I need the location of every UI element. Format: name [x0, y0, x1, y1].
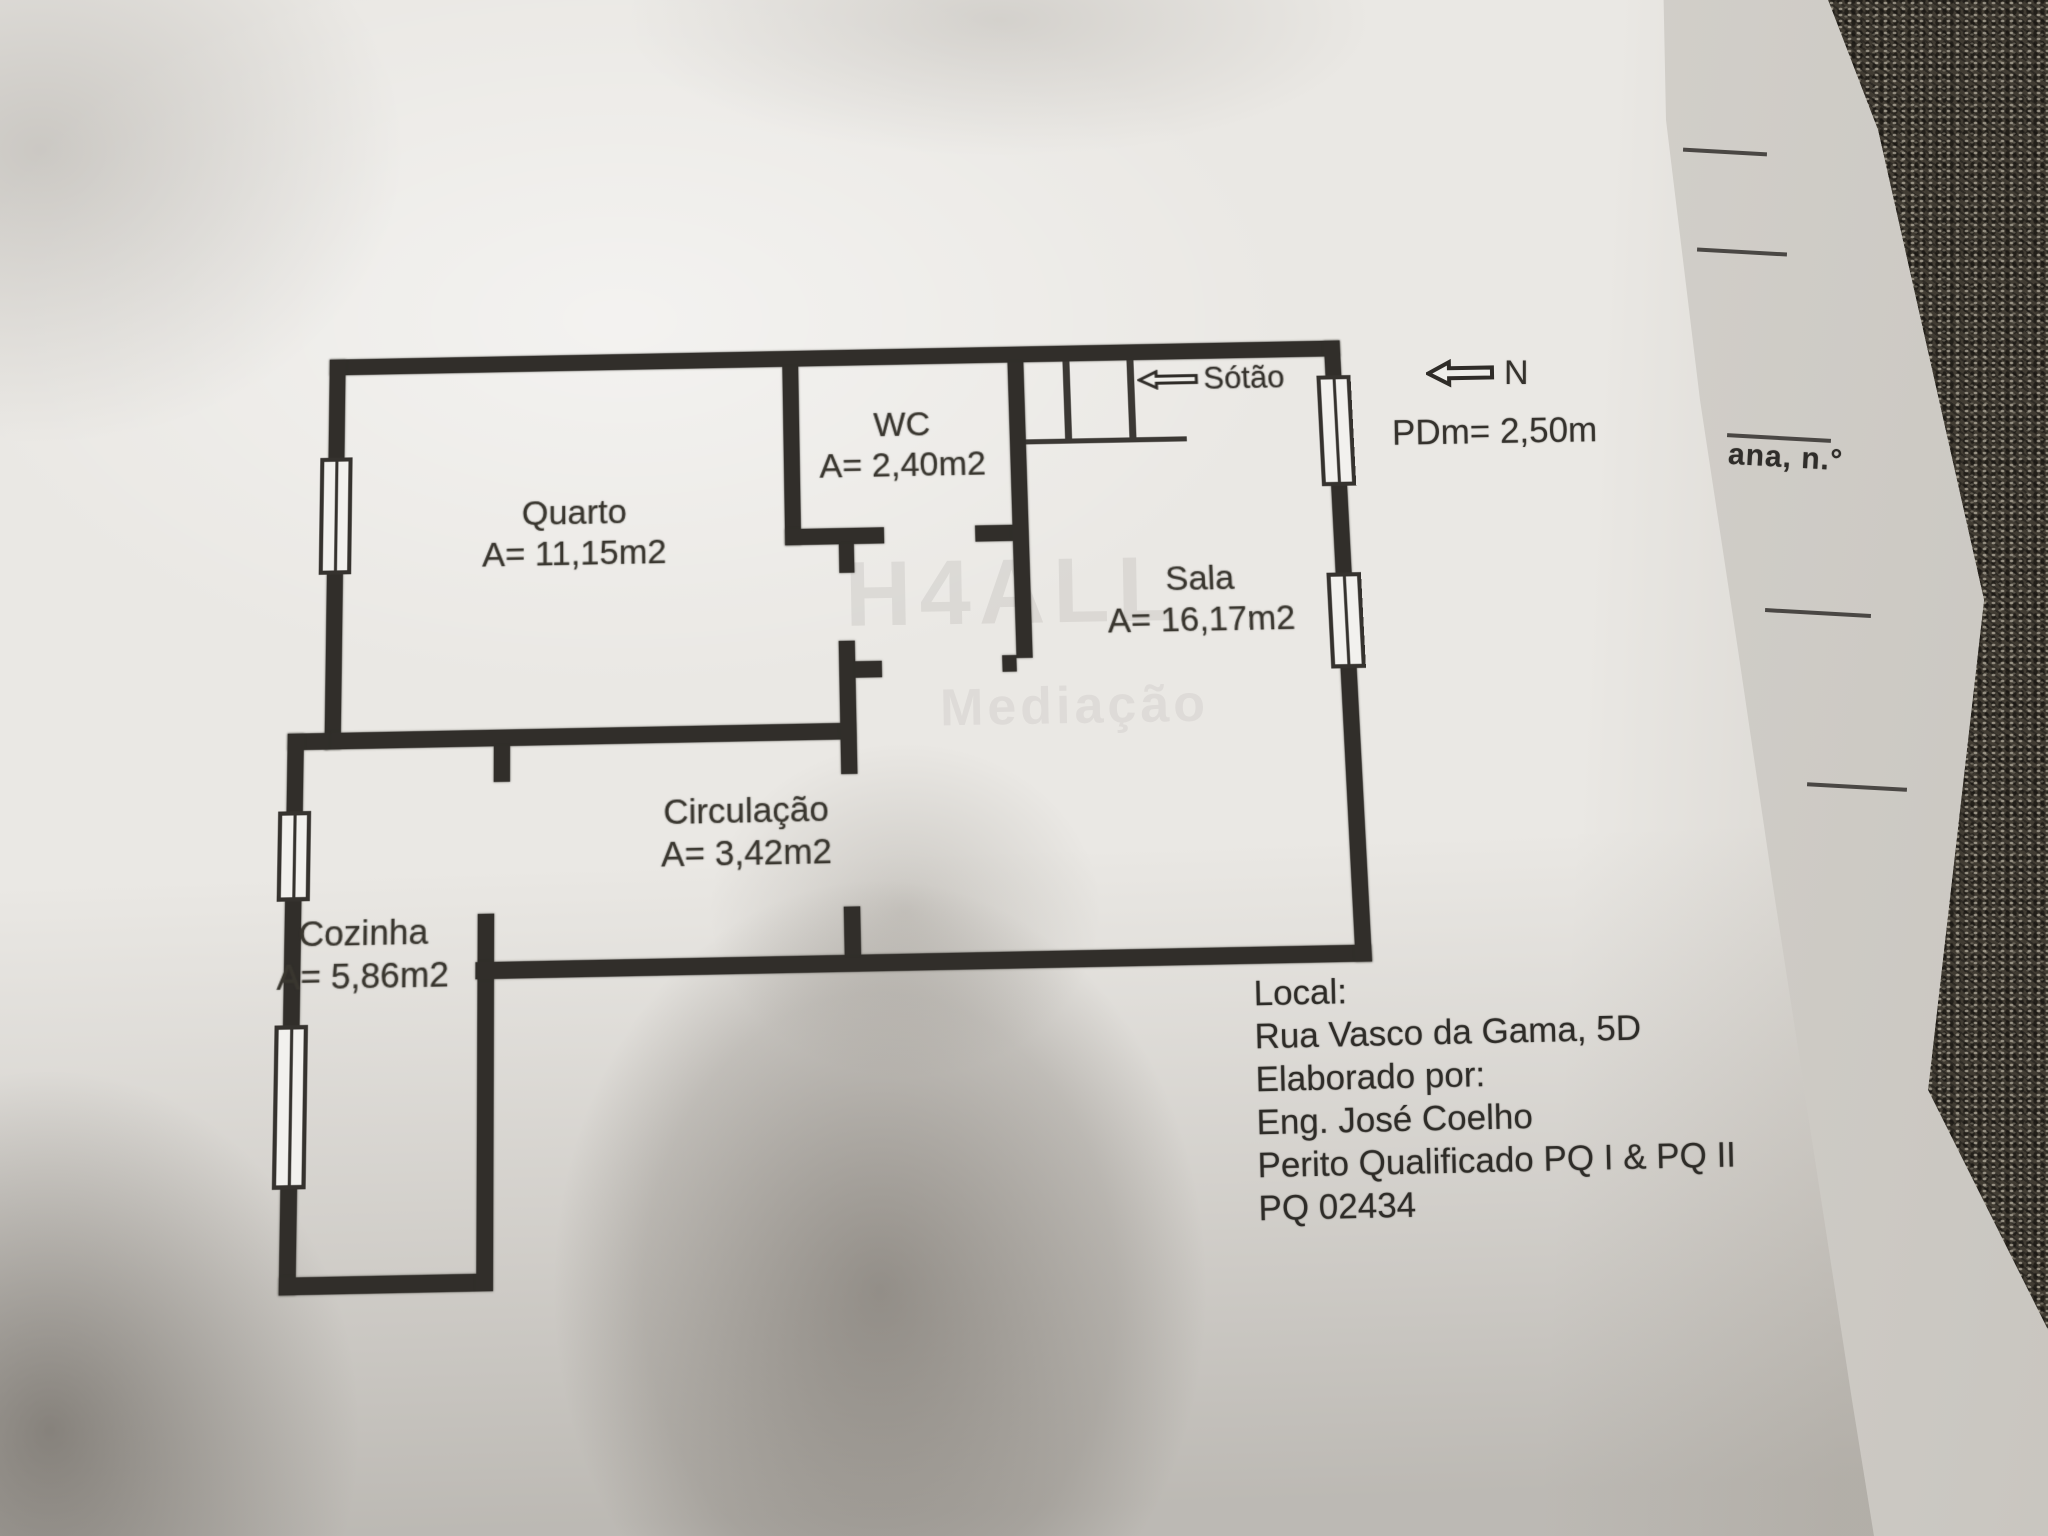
wall: [279, 1274, 477, 1296]
door-jamb: [1002, 655, 1017, 672]
floor-plan-drawing: Quarto A= 11,15m2 WC A= 2,40m2 Sala A= 1…: [317, 340, 1390, 1311]
partial-address-text: ana, n.°: [1727, 438, 1844, 478]
room-name: Circulação: [663, 789, 829, 832]
window-symbol: [277, 811, 311, 902]
door-jamb: [975, 525, 1013, 542]
staircase-step: [1062, 361, 1072, 438]
room-area: A= 3,42m2: [661, 831, 832, 875]
room-label-cozinha: Cozinha A= 5,86m2: [206, 909, 519, 1001]
room-label-sala: Sala A= 16,17m2: [1047, 555, 1355, 643]
room-name: Quarto: [522, 493, 627, 534]
room-name: Sala: [1164, 558, 1235, 598]
attic-arrow-icon: [1137, 369, 1200, 390]
wall: [475, 944, 1372, 979]
staircase-step: [1126, 360, 1136, 437]
window-symbol: [1316, 375, 1356, 486]
room-area: A= 2,40m2: [819, 444, 986, 486]
ceiling-height-label: PDm= 2,50m: [1392, 410, 1598, 454]
info-block: Local: Rua Vasco da Gama, 5D Elaborado p…: [1253, 960, 1819, 1231]
door-jamb: [844, 906, 862, 955]
window-symbol: [319, 457, 353, 574]
room-name: Cozinha: [298, 912, 428, 955]
window-symbol: [272, 1025, 308, 1190]
room-area: A= 11,15m2: [482, 532, 666, 574]
room-name: WC: [873, 405, 931, 444]
north-label: N: [1504, 354, 1529, 393]
wall: [785, 527, 884, 545]
wall: [324, 723, 855, 750]
door-jamb: [839, 544, 855, 573]
room-label-quarto: Quarto A= 11,15m2: [422, 490, 726, 577]
north-arrow-icon: [1426, 357, 1497, 388]
room-label-circulacao: Circulação A= 3,42m2: [591, 787, 902, 878]
door-jamb: [494, 746, 511, 782]
photo-of-floor-plan: ana, n.° H4ALL Mediação: [0, 0, 2048, 1536]
room-area: A= 16,17m2: [1107, 598, 1296, 641]
room-label-wc: WC A= 2,40m2: [751, 402, 1055, 488]
door-jamb: [855, 661, 882, 678]
attic-label: Sótão: [1203, 359, 1286, 396]
room-area: A= 5,86m2: [276, 954, 449, 998]
